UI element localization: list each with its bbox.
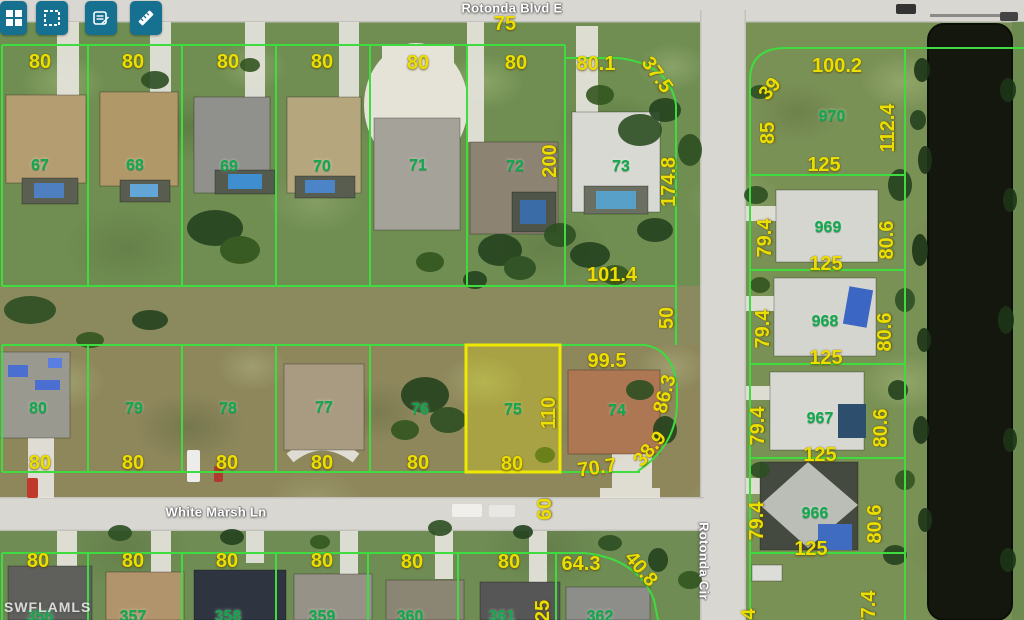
map-canvas[interactable]: 80808080808080.137.5200174.875101.450100…	[0, 0, 1024, 620]
layout-grid-button[interactable]	[0, 1, 27, 35]
aerial-imagery	[0, 0, 1024, 620]
measure-ruler-icon	[136, 8, 156, 28]
notes-button[interactable]	[85, 1, 117, 35]
layout-grid-icon	[5, 9, 23, 27]
select-area-button[interactable]	[36, 1, 68, 35]
measure-button[interactable]	[130, 1, 162, 35]
select-area-icon	[43, 9, 61, 27]
notes-edit-icon	[92, 9, 110, 27]
highlighted-parcel-75[interactable]	[466, 345, 560, 472]
